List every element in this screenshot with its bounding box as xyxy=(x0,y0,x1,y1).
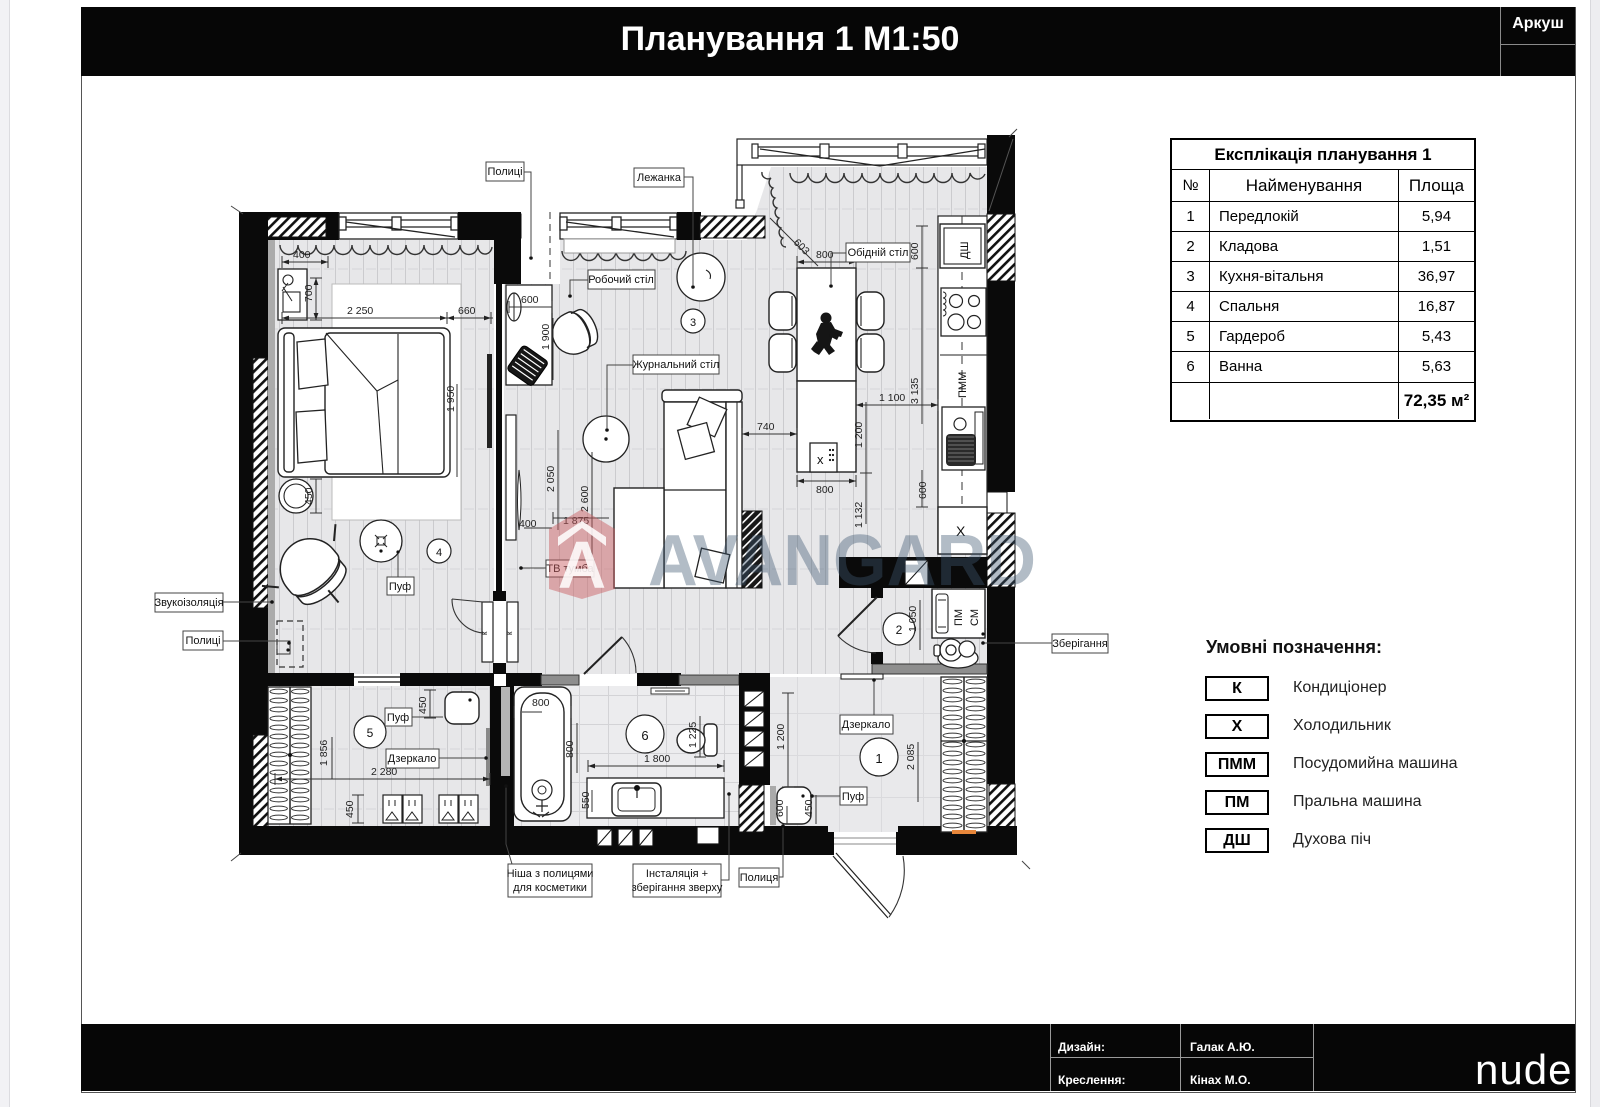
svg-text:1: 1 xyxy=(875,751,882,766)
svg-text:2 085: 2 085 xyxy=(905,744,917,770)
svg-text:Зберігання: Зберігання xyxy=(1052,638,1108,650)
svg-text:400: 400 xyxy=(293,249,311,261)
svg-text:600: 600 xyxy=(521,294,539,306)
svg-text:Пуф: Пуф xyxy=(842,791,864,803)
svg-text:700: 700 xyxy=(303,284,315,302)
svg-text:1 050: 1 050 xyxy=(907,606,919,632)
svg-text:1 200: 1 200 xyxy=(775,724,787,750)
svg-text:Дзеркало: Дзеркало xyxy=(842,719,891,731)
svg-text:550: 550 xyxy=(580,791,592,809)
svg-text:ПММ: ПММ xyxy=(957,372,969,398)
svg-text:450: 450 xyxy=(344,800,356,818)
svg-text:Дзеркало: Дзеркало xyxy=(388,753,437,765)
svg-text:2 600: 2 600 xyxy=(579,486,591,512)
svg-text:Обідній стіл: Обідній стіл xyxy=(848,247,909,259)
svg-text:Журнальний стіл: Журнальний стіл xyxy=(633,359,720,371)
svg-text:Полиці: Полиці xyxy=(185,635,220,647)
svg-text:1 800: 1 800 xyxy=(644,753,670,765)
svg-text:Робочий стіл: Робочий стіл xyxy=(588,274,654,286)
svg-text:СМ: СМ xyxy=(969,609,981,626)
svg-text:зберігання зверху: зберігання зверху xyxy=(632,882,723,894)
svg-text:1 225: 1 225 xyxy=(687,722,699,748)
svg-text:1 950: 1 950 xyxy=(445,386,457,412)
svg-text:2: 2 xyxy=(896,623,903,637)
svg-text:Звукоізоляція: Звукоізоляція xyxy=(154,597,223,609)
svg-text:Полиця: Полиця xyxy=(740,872,779,884)
svg-text:1 100: 1 100 xyxy=(879,392,905,404)
svg-text:3 135: 3 135 xyxy=(909,378,921,404)
svg-text:x: x xyxy=(817,452,824,467)
svg-text:для косметики: для косметики xyxy=(513,882,587,894)
svg-text:450: 450 xyxy=(303,487,315,505)
svg-text:A: A xyxy=(558,528,606,603)
svg-text:к: к xyxy=(505,631,514,635)
svg-text:6: 6 xyxy=(641,728,648,743)
svg-text:1 900: 1 900 xyxy=(540,324,552,350)
svg-text:600: 600 xyxy=(909,242,921,260)
svg-text:450: 450 xyxy=(417,696,429,714)
svg-text:Пуф: Пуф xyxy=(389,581,411,593)
svg-text:ДШ: ДШ xyxy=(959,241,971,259)
svg-text:400: 400 xyxy=(519,518,537,530)
svg-text:740: 740 xyxy=(757,421,775,433)
svg-text:AVANGARD: AVANGARD xyxy=(648,521,1036,601)
svg-text:Ніша з полицями: Ніша з полицями xyxy=(507,868,594,880)
svg-text:800: 800 xyxy=(532,697,550,709)
svg-text:к: к xyxy=(480,631,489,635)
svg-text:3: 3 xyxy=(690,317,696,329)
svg-text:2 050: 2 050 xyxy=(545,466,557,492)
svg-text:1 856: 1 856 xyxy=(318,740,330,766)
svg-text:600: 600 xyxy=(917,481,929,499)
svg-text:1 200: 1 200 xyxy=(853,422,865,448)
svg-text:600: 600 xyxy=(774,799,786,817)
svg-text:4: 4 xyxy=(436,547,442,559)
svg-text:660: 660 xyxy=(458,305,476,317)
svg-text:Пуф: Пуф xyxy=(387,712,409,724)
svg-text:5: 5 xyxy=(367,726,374,740)
svg-text:Полиці: Полиці xyxy=(487,166,522,178)
svg-text:ПМ: ПМ xyxy=(953,609,965,626)
svg-text:800: 800 xyxy=(564,740,576,758)
svg-text:Лежанка: Лежанка xyxy=(637,172,682,184)
svg-text:Інсталяція +: Інсталяція + xyxy=(646,868,708,880)
svg-text:450: 450 xyxy=(803,799,815,817)
svg-text:2 250: 2 250 xyxy=(347,305,373,317)
svg-text:800: 800 xyxy=(816,484,834,496)
